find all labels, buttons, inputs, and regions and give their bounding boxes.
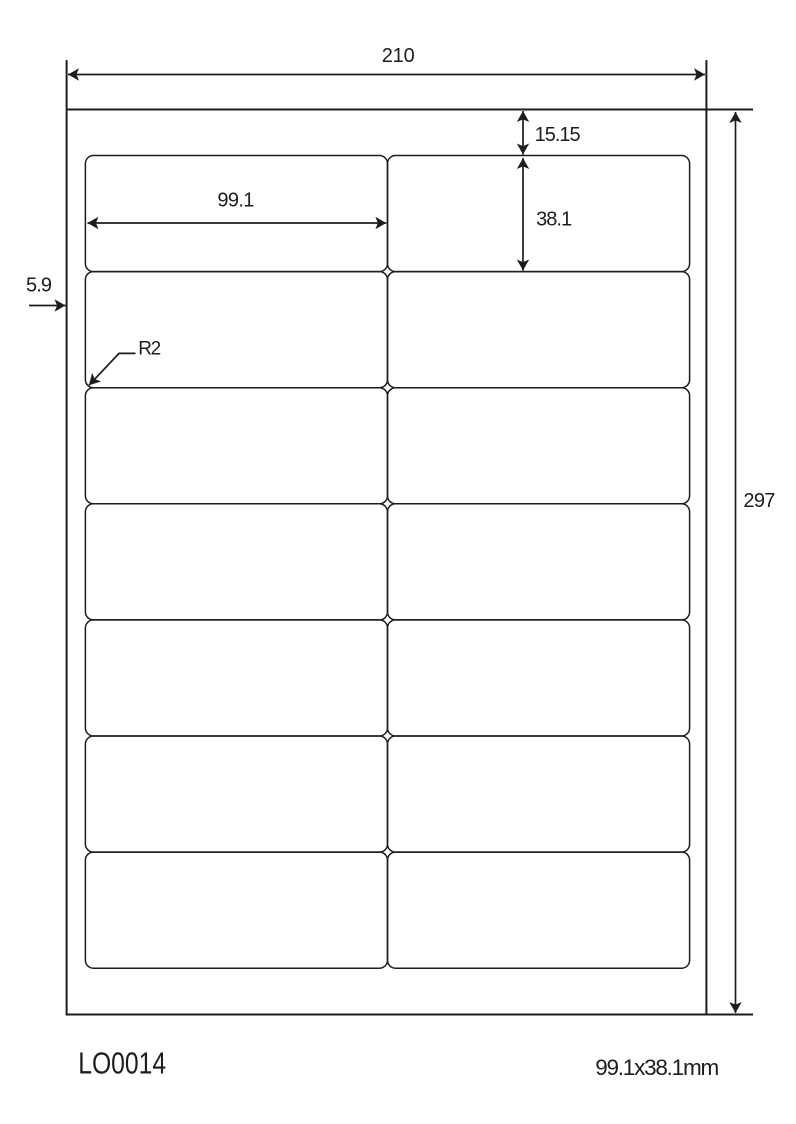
- svg-text:R2: R2: [138, 339, 161, 360]
- svg-text:5.9: 5.9: [26, 275, 52, 297]
- svg-text:15.15: 15.15: [535, 124, 581, 146]
- svg-text:210: 210: [382, 45, 415, 67]
- svg-text:297: 297: [743, 490, 775, 512]
- svg-text:38.1: 38.1: [536, 208, 572, 230]
- svg-text:99.1x38.1mm: 99.1x38.1mm: [595, 1055, 719, 1080]
- svg-text:99.1: 99.1: [217, 190, 254, 212]
- svg-text:LO0014: LO0014: [78, 1046, 166, 1080]
